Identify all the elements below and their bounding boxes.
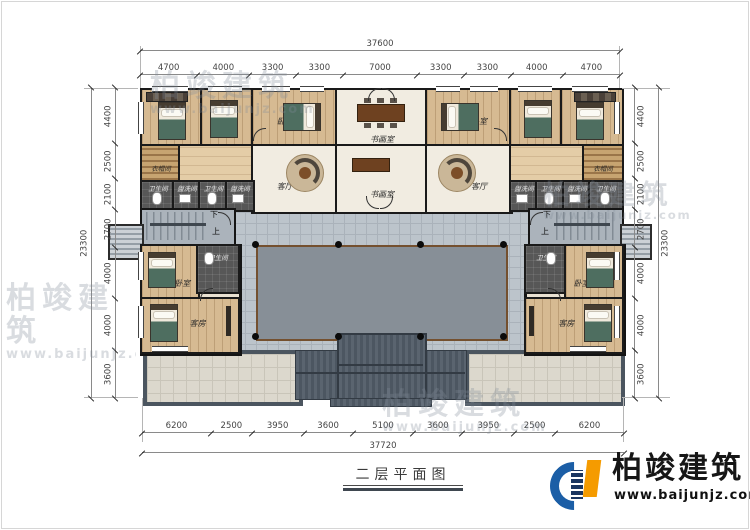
tv-cabinet <box>226 306 231 336</box>
logo-orange-block-icon <box>583 460 602 497</box>
column-dot <box>500 333 507 340</box>
room-label: 卧室 <box>174 280 190 288</box>
room-label: 客房 <box>558 320 574 328</box>
sink <box>516 194 528 203</box>
stair-treads <box>556 212 614 240</box>
room-label: 客房 <box>190 320 206 328</box>
desk <box>352 158 390 172</box>
window <box>138 306 144 338</box>
room-label: 盥洗间 <box>567 186 587 193</box>
toilet <box>204 252 214 265</box>
conference-table <box>357 104 405 122</box>
wardrobe <box>146 92 188 102</box>
room-label: 盥洗间 <box>514 186 534 193</box>
window <box>436 86 460 92</box>
room-label: 盥洗间 <box>177 186 197 193</box>
stairs-up-label: 上 <box>541 228 549 236</box>
sofa-set <box>286 154 324 192</box>
logo-website: www.baijunjz.com <box>614 489 750 502</box>
watermark: 柏竣建筑 www.baijunjz.com <box>6 282 136 362</box>
bed <box>210 100 238 138</box>
window <box>138 102 144 134</box>
floor-plan-sheet: 柏竣建筑 www.baijunjz.com 柏竣建筑 www.baijunjz.… <box>0 0 750 530</box>
bed <box>158 102 186 140</box>
window <box>152 346 188 352</box>
title-underline <box>343 485 463 486</box>
dim-chain-top-total: 37600 <box>140 38 620 51</box>
window <box>570 346 606 352</box>
window <box>572 86 608 92</box>
roof-ridge <box>337 364 423 366</box>
toilet <box>600 192 610 205</box>
sink <box>232 194 244 203</box>
column-dot <box>500 241 507 248</box>
bed <box>150 304 178 342</box>
inner-courtyard <box>256 245 508 341</box>
roof-eave-step <box>330 398 432 407</box>
window <box>300 86 324 92</box>
sink <box>179 194 191 203</box>
dim-chain-left-segments: 4400250021002700400040003600 <box>102 88 115 398</box>
window <box>614 252 620 280</box>
dim-chain-top-segments: 470040003300330070003300330040004700 <box>140 62 620 75</box>
company-logo: 柏竣建筑 www.baijunjz.com <box>548 452 746 522</box>
roof-ridge <box>295 372 465 374</box>
stair-divider <box>150 223 206 226</box>
column-dot <box>335 241 342 248</box>
stairs-down-label: 下 <box>210 211 218 219</box>
window <box>614 102 620 134</box>
room-label: 书画室 <box>370 136 394 144</box>
bed <box>283 103 321 131</box>
stairs-up-label: 上 <box>212 228 220 236</box>
column-dot <box>252 241 259 248</box>
stair-treads <box>146 212 204 240</box>
bed <box>441 103 479 131</box>
column-dot <box>335 333 342 340</box>
column-dot <box>252 333 259 340</box>
toilet <box>152 192 162 205</box>
logo-company-name: 柏竣建筑 <box>612 454 744 484</box>
tv-cabinet <box>529 306 534 336</box>
toilet <box>546 252 556 265</box>
bathroom-west: 卫生间 <box>196 244 240 294</box>
window <box>262 86 290 92</box>
sofa-set <box>438 154 476 192</box>
window <box>138 252 144 280</box>
title-underline-thick <box>343 488 463 491</box>
window <box>518 86 552 92</box>
toilet <box>544 192 554 205</box>
window <box>614 306 620 338</box>
bed <box>148 252 176 288</box>
toilet <box>207 192 217 205</box>
room-label: 盥洗间 <box>230 186 250 193</box>
wardrobe <box>574 92 616 102</box>
window <box>208 86 242 92</box>
dim-chain-right-segments: 4400250021002700400040003600 <box>634 88 647 398</box>
sink <box>569 194 581 203</box>
room-label: 衣帽间 <box>151 166 171 173</box>
bed <box>576 102 604 140</box>
dim-chain-bottom-segments: 620025003950360051003600395025006200 <box>142 420 624 433</box>
bed <box>586 252 614 288</box>
column-dot <box>417 333 424 340</box>
terrace-left <box>143 350 303 406</box>
room-label: 客厅 <box>471 183 487 191</box>
drawing-title: 二层平面图 <box>343 464 463 484</box>
terrace-right <box>465 350 625 406</box>
window <box>470 86 498 92</box>
bed <box>584 304 612 342</box>
bed <box>524 100 552 138</box>
column-dot <box>417 241 424 248</box>
roof-raised-center <box>337 333 427 402</box>
dim-chain-left-total: 23300 <box>78 88 91 398</box>
bathroom-east: 卫生间 <box>524 244 568 294</box>
window <box>152 86 188 92</box>
stair-divider <box>554 223 610 226</box>
room-label: 衣帽间 <box>593 166 613 173</box>
logo-building-icon <box>550 456 606 514</box>
dim-chain-right-total: 23300 <box>658 88 671 398</box>
stairs-down-label: 下 <box>543 211 551 219</box>
